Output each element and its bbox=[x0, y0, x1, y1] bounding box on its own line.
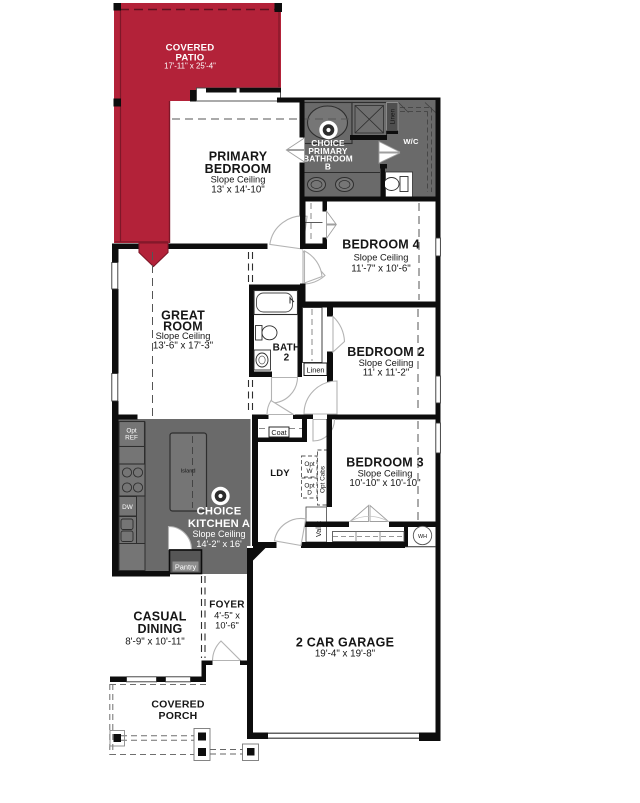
svg-text:13' x 14'-10": 13' x 14'-10" bbox=[211, 185, 265, 196]
svg-text:Linen: Linen bbox=[306, 366, 324, 375]
svg-text:4'-5" x: 4'-5" x bbox=[214, 611, 240, 621]
svg-text:Coat: Coat bbox=[271, 428, 286, 437]
svg-text:Slope Ceiling: Slope Ceiling bbox=[211, 175, 266, 185]
svg-text:PORCH: PORCH bbox=[159, 710, 198, 722]
svg-text:B: B bbox=[325, 161, 331, 171]
svg-text:CHOICE: CHOICE bbox=[197, 506, 242, 518]
svg-text:Slope Ceiling: Slope Ceiling bbox=[156, 331, 211, 341]
svg-text:Island: Island bbox=[181, 469, 196, 475]
svg-text:Opt: Opt bbox=[304, 483, 315, 490]
svg-text:Opt Cabs: Opt Cabs bbox=[320, 466, 327, 493]
svg-text:10'-6": 10'-6" bbox=[215, 621, 239, 631]
svg-text:19'-4" x 19'-8": 19'-4" x 19'-8" bbox=[315, 649, 376, 660]
svg-text:8'-9" x 10'-11": 8'-9" x 10'-11" bbox=[125, 637, 185, 648]
svg-text:COVERED: COVERED bbox=[151, 699, 205, 711]
svg-text:BEDROOM 4: BEDROOM 4 bbox=[342, 238, 420, 252]
svg-text:Slope Ceiling: Slope Ceiling bbox=[359, 358, 414, 368]
svg-text:DW: DW bbox=[122, 504, 134, 511]
svg-text:WH: WH bbox=[418, 534, 427, 540]
svg-text:13'-6" x 17'-3": 13'-6" x 17'-3" bbox=[153, 341, 214, 352]
svg-text:17'-11" x 25'-4": 17'-11" x 25'-4" bbox=[164, 62, 216, 71]
svg-text:14'-2" x 16': 14'-2" x 16' bbox=[196, 539, 242, 549]
svg-text:W: W bbox=[306, 468, 313, 475]
svg-text:Slope Ceiling: Slope Ceiling bbox=[358, 468, 413, 478]
svg-text:11' x 11'-2": 11' x 11'-2" bbox=[363, 367, 410, 378]
svg-text:REF: REF bbox=[125, 435, 138, 442]
svg-text:11'-7" x 10'-6": 11'-7" x 10'-6" bbox=[351, 264, 411, 275]
svg-text:Pantry: Pantry bbox=[175, 563, 197, 572]
svg-text:LDY: LDY bbox=[270, 468, 290, 479]
svg-text:Linen: Linen bbox=[390, 108, 397, 124]
svg-text:Slope Ceiling: Slope Ceiling bbox=[354, 253, 409, 263]
svg-text:Opt: Opt bbox=[126, 428, 137, 435]
svg-text:W/C: W/C bbox=[403, 137, 419, 146]
svg-text:2 CAR GARAGE: 2 CAR GARAGE bbox=[296, 636, 394, 650]
svg-text:Opt: Opt bbox=[304, 461, 315, 468]
svg-text:FOYER: FOYER bbox=[209, 600, 245, 611]
svg-text:2: 2 bbox=[284, 353, 290, 364]
svg-text:D: D bbox=[307, 490, 312, 497]
svg-text:KITCHEN A: KITCHEN A bbox=[188, 518, 250, 530]
svg-text:10'-10" x 10'-10": 10'-10" x 10'-10" bbox=[349, 478, 421, 489]
svg-text:DINING: DINING bbox=[138, 622, 183, 636]
svg-text:Slope Ceiling: Slope Ceiling bbox=[192, 529, 245, 539]
